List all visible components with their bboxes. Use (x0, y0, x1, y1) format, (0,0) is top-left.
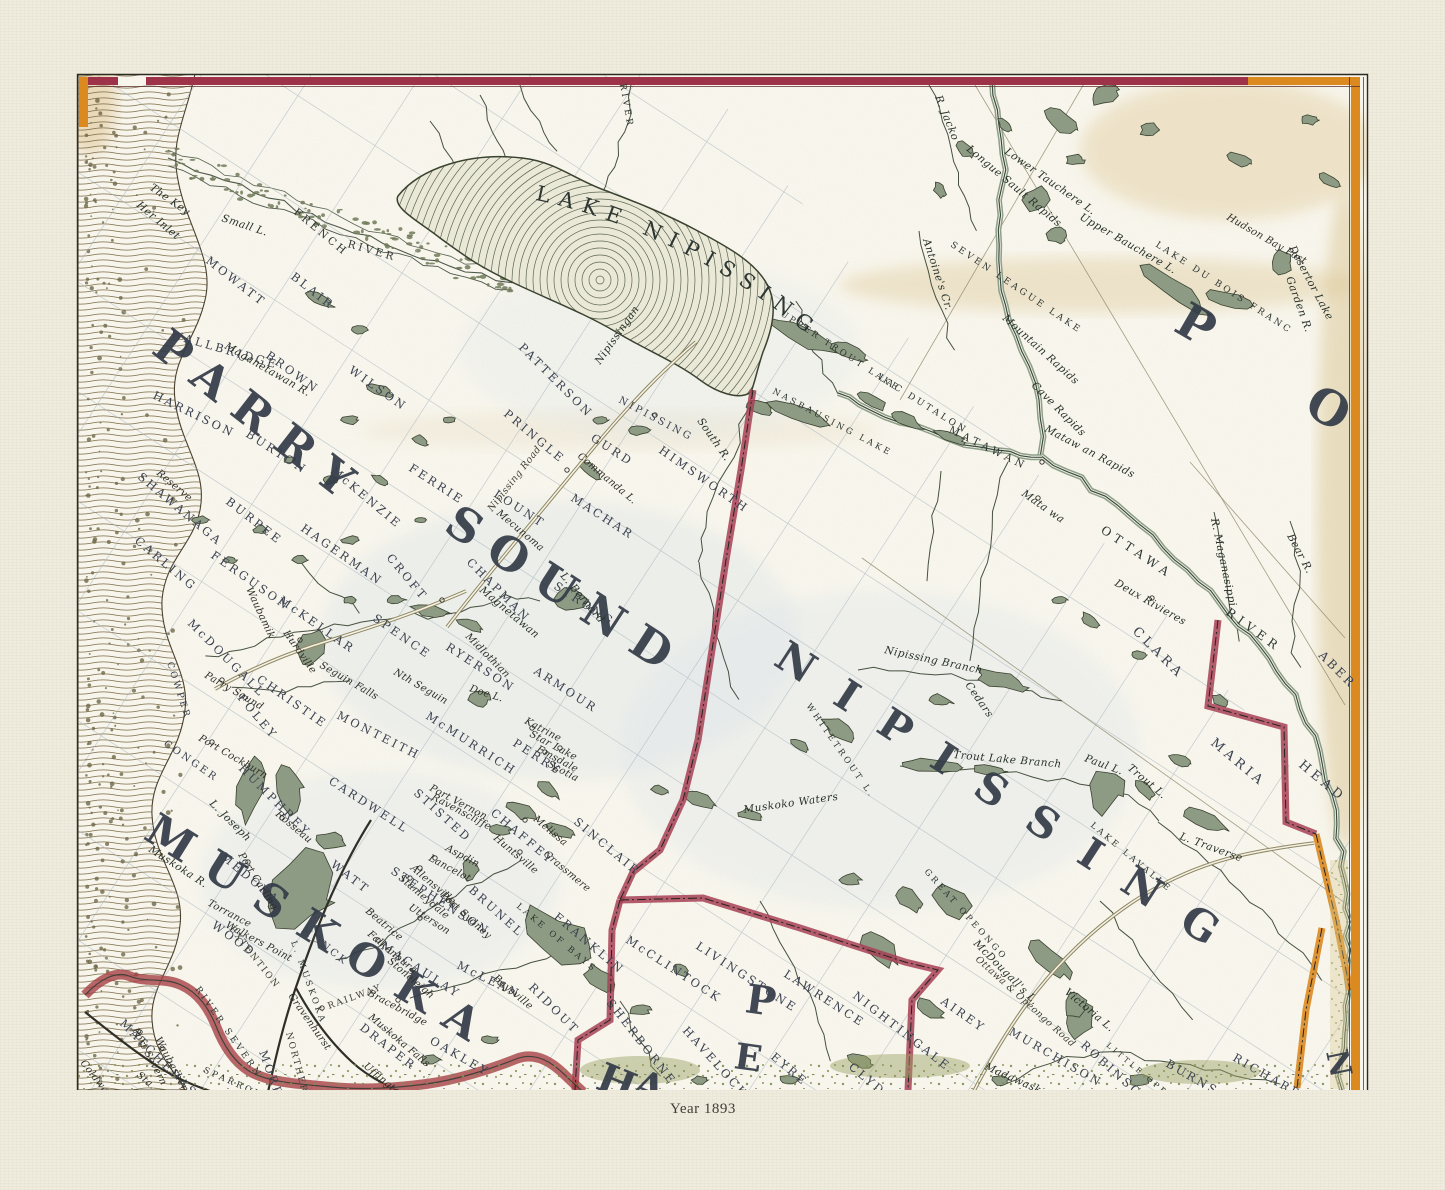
map-caption: Year 1893 (670, 1101, 736, 1118)
map-sheet: PARRYSOUNDMUSKOKANIPISSINGPOPEHANMOWATTB… (0, 0, 1445, 1190)
paper-grain-overlay (0, 0, 1445, 1190)
map-canvas: PARRYSOUNDMUSKOKANIPISSINGPOPEHANMOWATTB… (0, 0, 1445, 1190)
